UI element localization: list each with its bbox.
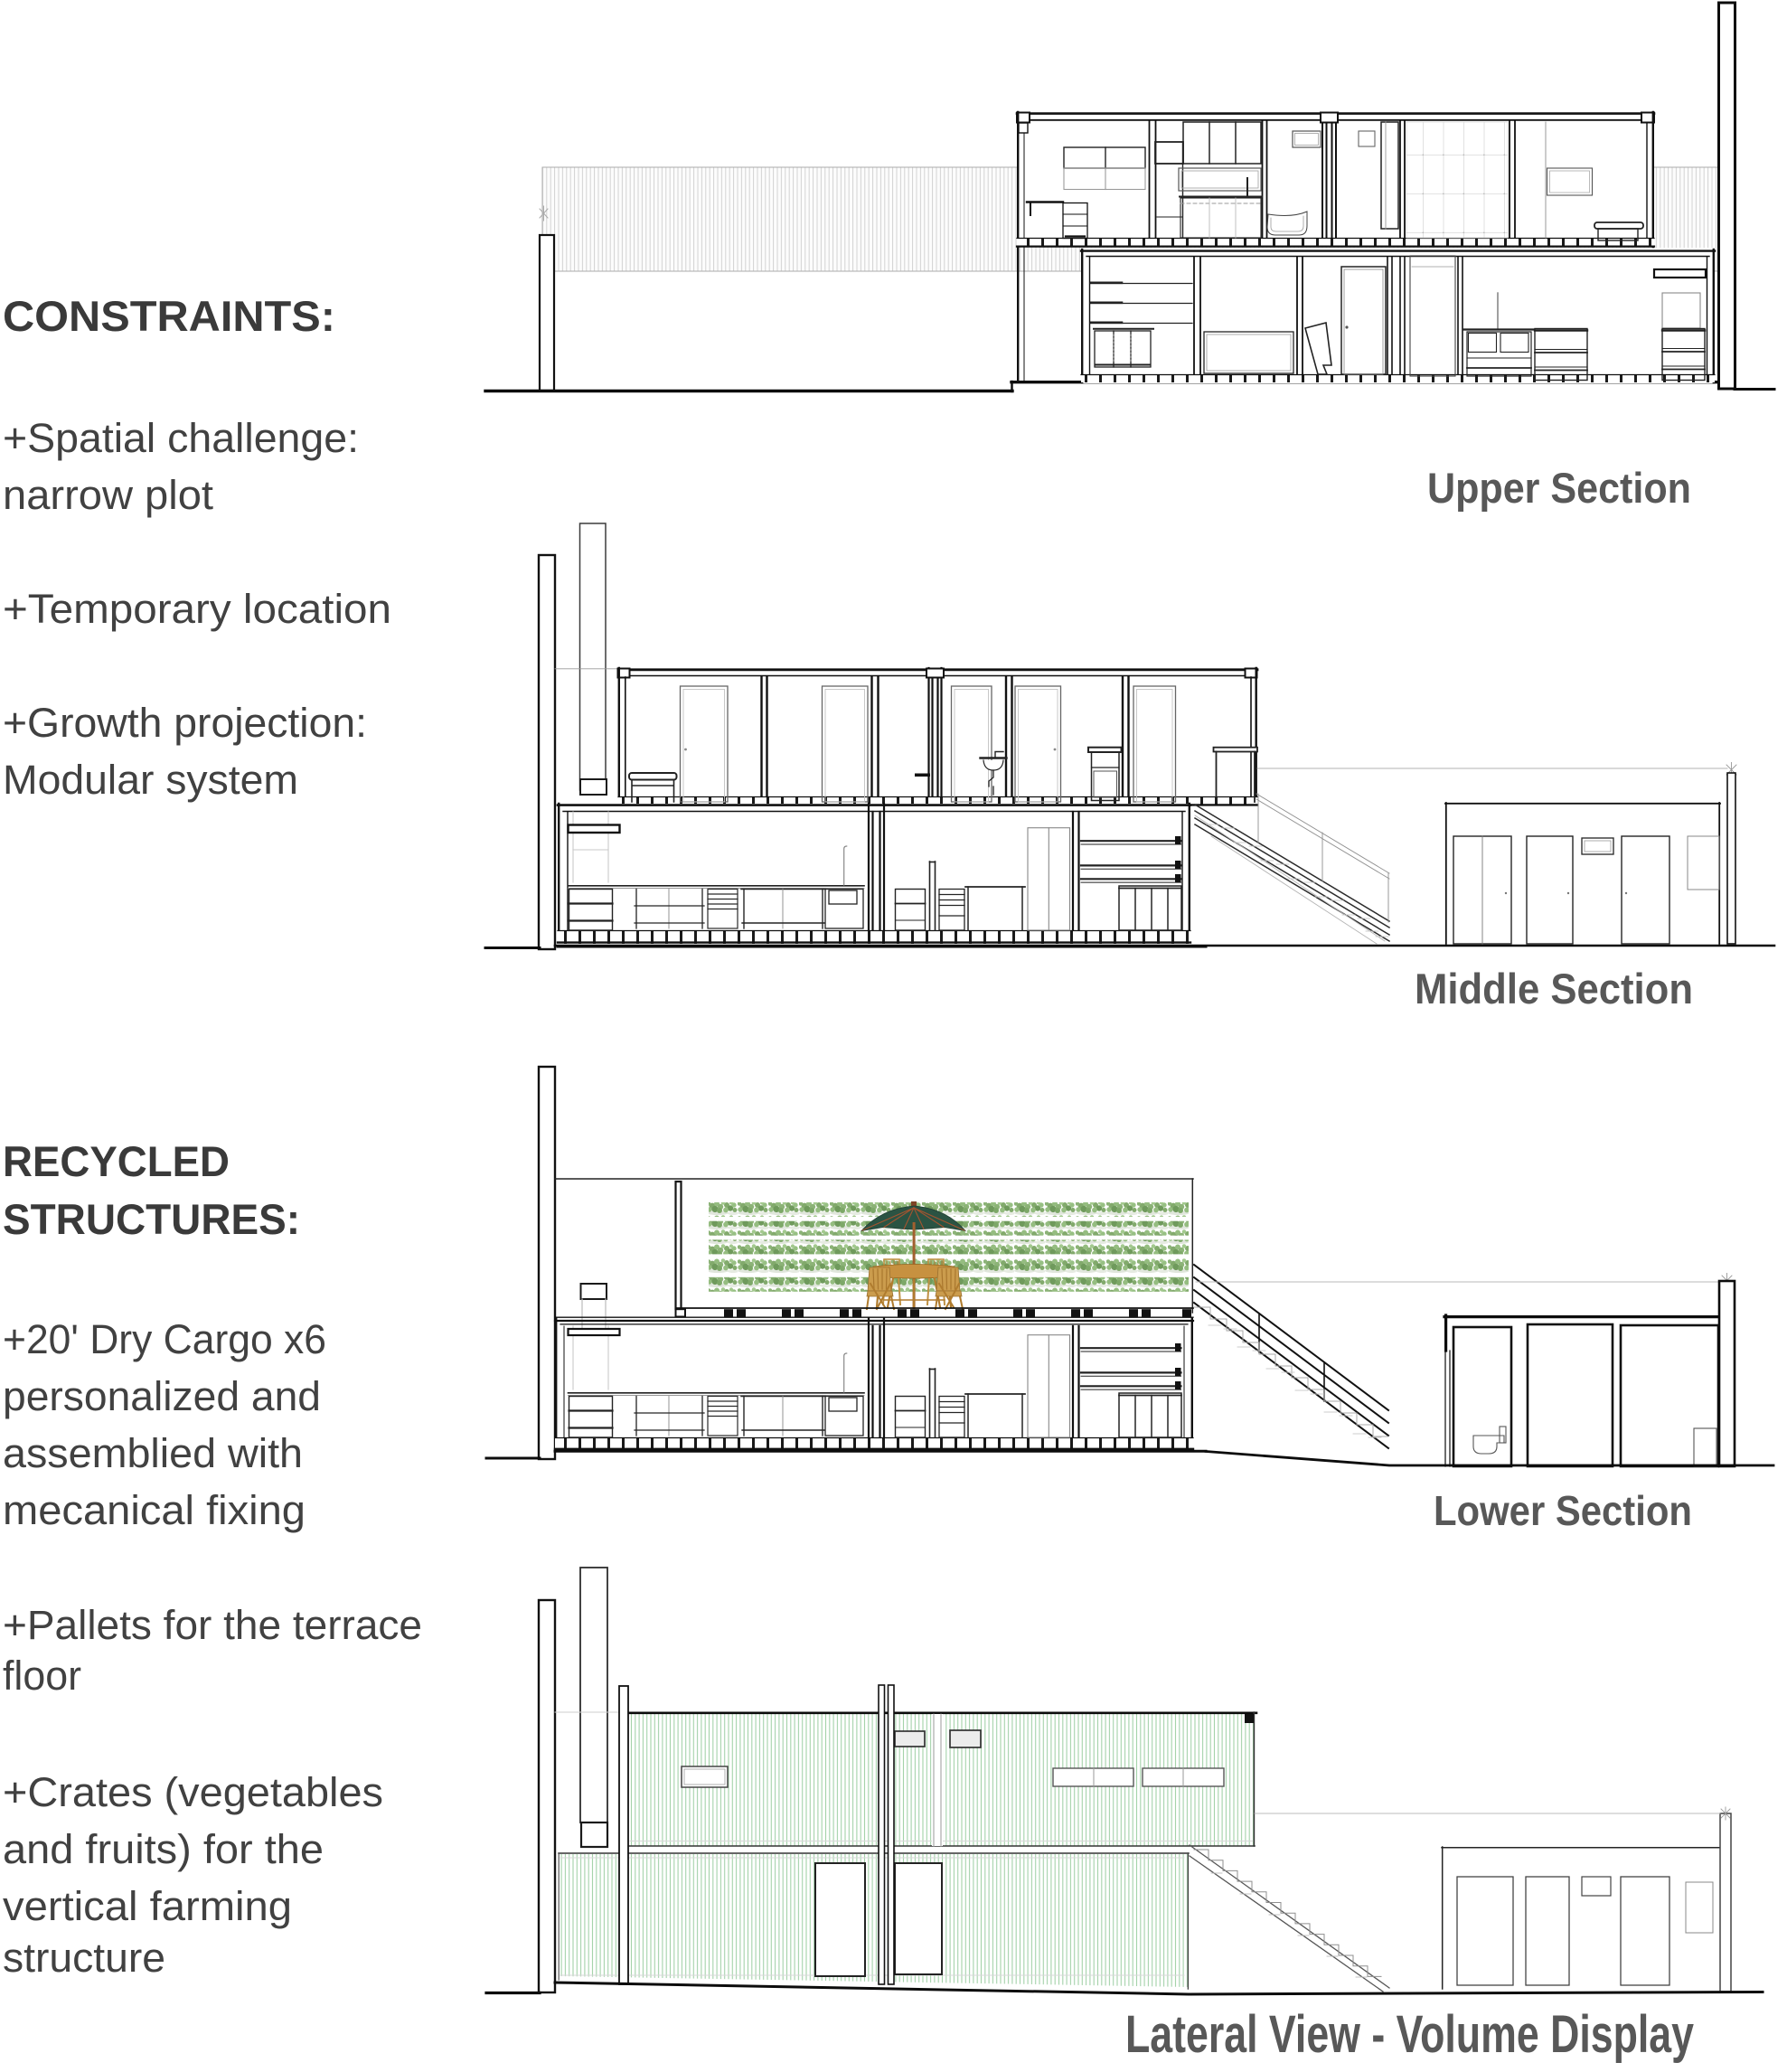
svg-text:vertical farming: vertical farming: [3, 1883, 292, 1929]
svg-text:and fruits) for the: and fruits) for the: [3, 1826, 324, 1872]
svg-text:STRUCTURES:: STRUCTURES:: [3, 1195, 300, 1243]
svg-text:floor: floor: [3, 1653, 81, 1699]
svg-text:+Pallets for the terrace: +Pallets for the terrace: [3, 1602, 422, 1648]
svg-text:+Crates (vegetables: +Crates (vegetables: [3, 1769, 383, 1815]
svg-text:+20' Dry Cargo x6: +20' Dry Cargo x6: [3, 1316, 326, 1362]
svg-text:CONSTRAINTS:: CONSTRAINTS:: [3, 292, 335, 340]
svg-text:personalized and: personalized and: [3, 1373, 321, 1419]
svg-text:Lateral View - Volume Display: Lateral View - Volume Display: [1125, 2005, 1694, 2064]
svg-text:narrow plot: narrow plot: [3, 472, 214, 518]
svg-text:Middle Section: Middle Section: [1415, 965, 1693, 1012]
svg-text:structure: structure: [3, 1935, 165, 1981]
svg-text:Modular system: Modular system: [3, 757, 298, 803]
svg-text:+Temporary location: +Temporary location: [3, 586, 391, 632]
svg-text:assemblied with: assemblied with: [3, 1430, 303, 1476]
svg-text:+Growth projection:: +Growth projection:: [3, 700, 367, 746]
svg-text:Lower Section: Lower Section: [1434, 1487, 1692, 1534]
svg-text:+Spatial challenge:: +Spatial challenge:: [3, 415, 359, 461]
svg-text:mecanical fixing: mecanical fixing: [3, 1487, 306, 1533]
svg-text:Upper Section: Upper Section: [1427, 464, 1691, 512]
svg-text:RECYCLED: RECYCLED: [3, 1137, 230, 1185]
